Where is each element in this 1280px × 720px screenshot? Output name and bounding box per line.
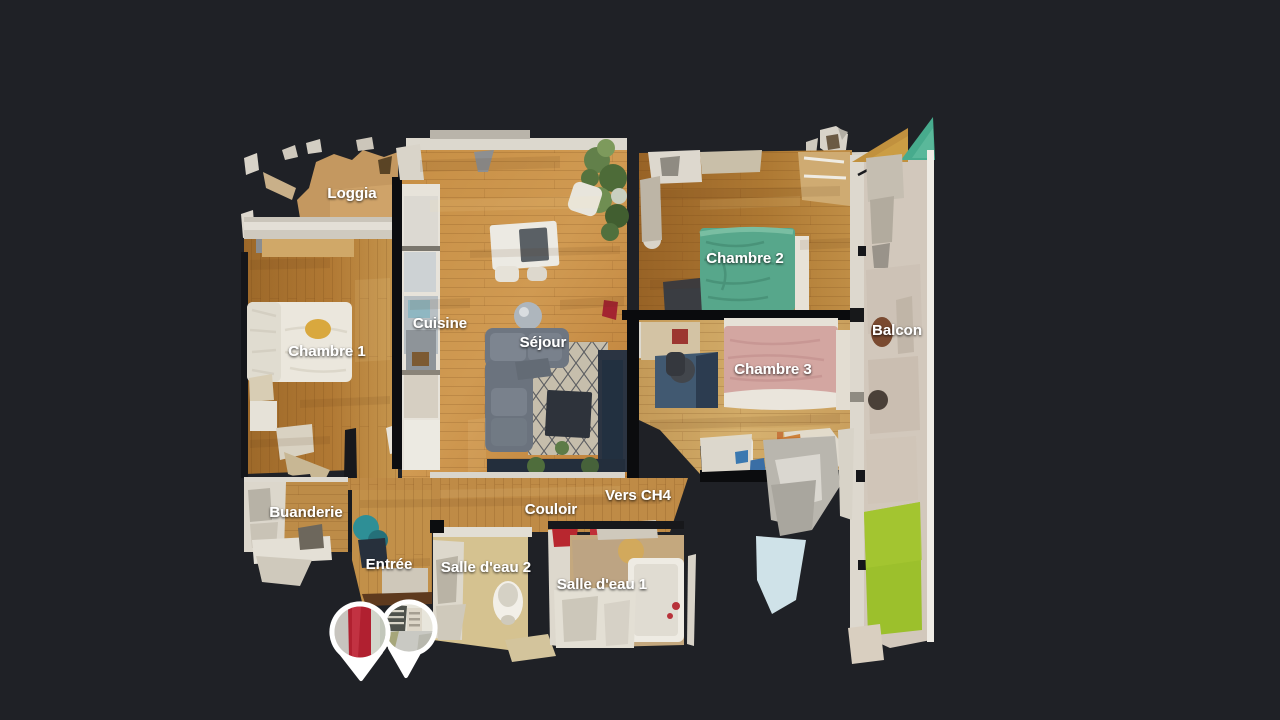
- svg-text:Buanderie: Buanderie: [269, 504, 342, 521]
- svg-text:Entrée: Entrée: [366, 556, 413, 573]
- svg-text:Salle d'eau 1: Salle d'eau 1: [557, 576, 647, 593]
- svg-text:Couloir: Couloir: [525, 501, 578, 518]
- svg-text:Chambre 3: Chambre 3: [734, 361, 812, 378]
- svg-text:Chambre 1: Chambre 1: [288, 343, 366, 360]
- svg-text:Cuisine: Cuisine: [413, 315, 467, 332]
- svg-text:Séjour: Séjour: [520, 334, 567, 351]
- svg-text:Vers CH4: Vers CH4: [605, 487, 672, 504]
- svg-text:Loggia: Loggia: [327, 185, 377, 202]
- svg-text:Salle d'eau 2: Salle d'eau 2: [441, 559, 531, 576]
- svg-text:Chambre 2: Chambre 2: [706, 250, 784, 267]
- svg-text:Balcon: Balcon: [872, 322, 922, 339]
